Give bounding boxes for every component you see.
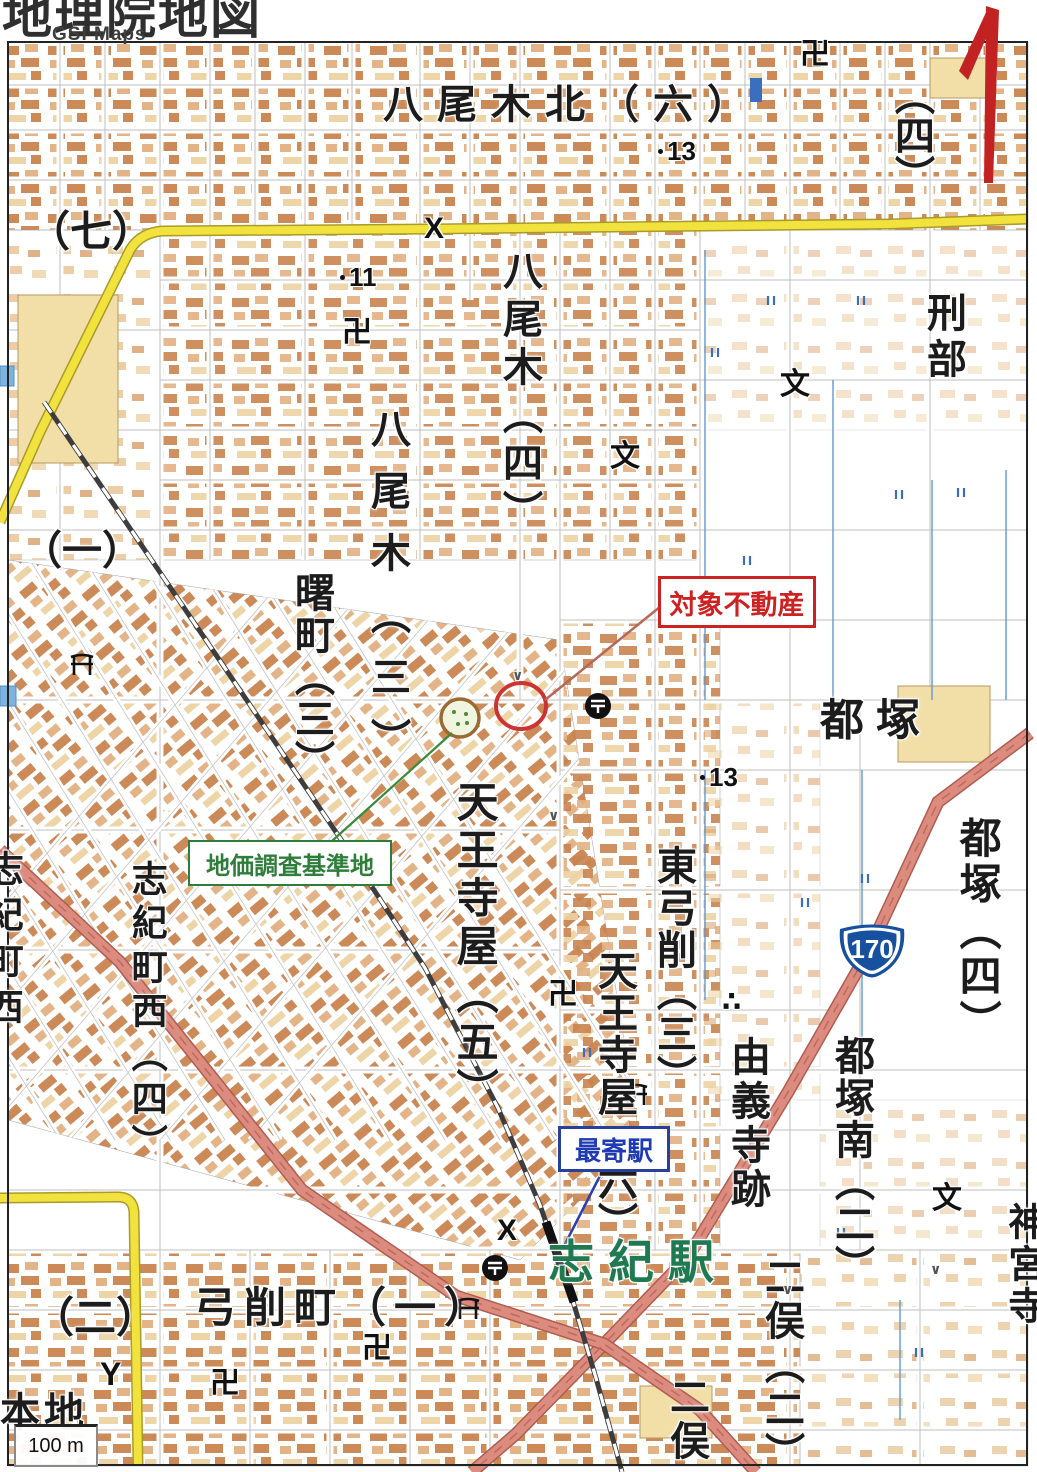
label-tennojiya-5: 天王寺屋（五） (452, 780, 496, 1116)
school-icon: 文 (780, 370, 810, 400)
scale-bar: 100 m (14, 1424, 98, 1467)
label-chome-2-bottom: （二） (32, 1296, 158, 1340)
label-tennojiya-6: 天王寺屋（六） (593, 950, 635, 1244)
label-shikicho-nishi-4: 志紀町西（四） (128, 860, 166, 1168)
temple-icon: 卍 (362, 1334, 392, 1364)
label-shikicho-nishi-edge: 志紀町西 (0, 850, 22, 1034)
spot-elevation-11: 11 (340, 264, 377, 290)
label-miyakozuka: 都塚 (820, 698, 932, 744)
callout-target-property: 対象不動産 (658, 576, 816, 628)
field-mark-icon: ∨ (782, 1282, 793, 1296)
label-futamata-edge: 二俣 (665, 1376, 707, 1464)
historic-site-icon: ∴ (722, 988, 741, 1016)
police-box-icon: X (424, 214, 444, 244)
label-higashi-yuge-3: 東弓削（三） (652, 845, 694, 1097)
route-170-shield: 170 (840, 925, 905, 978)
label-miyakozuka-4: 都塚（四） (955, 816, 999, 1046)
school-icon: 文 (610, 442, 640, 472)
scale-label: 100 m (28, 1435, 84, 1458)
fire-station-icon: Y (100, 1358, 121, 1390)
post-office-icon (482, 1255, 508, 1281)
label-chome-7: （七） (28, 210, 154, 254)
label-yaogi-3: 八尾木（三） (366, 408, 408, 780)
label-yugidera-ato: 由義寺跡 (726, 1036, 768, 1212)
label-osakabe: 刑部 (922, 292, 964, 384)
label-shiki-station: 志紀駅 (548, 1238, 728, 1286)
gsi-logo-subtitle: GSI Maps (52, 24, 147, 46)
temple-icon: 卍 (548, 980, 578, 1010)
school-icon: 文 (932, 1184, 962, 1214)
label-miyakozuka-minami-2: 都塚南（二） (830, 1035, 872, 1287)
callout-nearest-station: 最寄駅 (558, 1126, 670, 1172)
callout-survey-point: 地価調査基準地 (188, 840, 392, 886)
temple-icon: 卍 (210, 1369, 240, 1399)
label-chome-1: （一） (22, 530, 142, 572)
label-jinguji: 神宮寺 (1002, 1202, 1037, 1328)
label-yuge-cho-1: 弓削町（一） (194, 1286, 494, 1330)
label-akebono-3: 曙町（三） (290, 572, 332, 782)
label-yaogi-kita-6: 八尾木北（六） (383, 84, 761, 126)
label-yaogi-4: 八尾木（四） (498, 250, 540, 538)
temple-icon: 卍 (342, 318, 372, 348)
field-mark-icon: ∨ (930, 1262, 941, 1276)
spot-elevation-13-top: 13 (658, 138, 696, 164)
route-number: 170 (850, 934, 893, 964)
map-page: 170 地理院地図 GSI Maps 八尾木北（六） （七） （一） （四） 刑… (0, 0, 1037, 1472)
police-box-icon: X (497, 1216, 517, 1246)
label-futamata-2: 二俣（二） (760, 1256, 802, 1472)
post-office-icon (585, 693, 611, 719)
field-mark-icon: ∨ (548, 808, 559, 822)
temple-icon: 卍 (800, 40, 830, 70)
field-mark-icon: ∨ (512, 668, 523, 682)
spot-elevation-13-mid: 13 (700, 764, 738, 790)
label-chome-4-topright: （四） (890, 75, 932, 195)
